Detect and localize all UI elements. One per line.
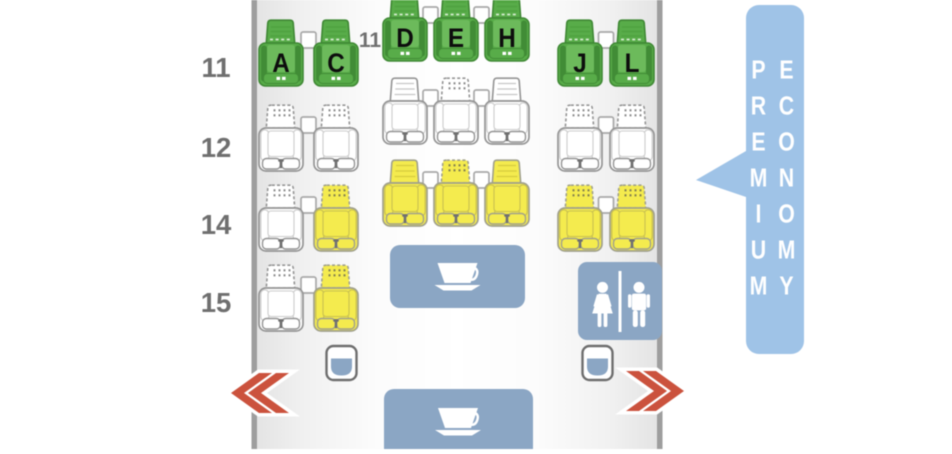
svg-text:E: E bbox=[751, 128, 765, 158]
svg-text:L: L bbox=[625, 49, 640, 78]
svg-text:12: 12 bbox=[201, 132, 232, 163]
svg-text:11: 11 bbox=[359, 29, 382, 52]
svg-text:M: M bbox=[750, 164, 768, 194]
svg-text:N: N bbox=[779, 164, 794, 194]
svg-text:11: 11 bbox=[201, 52, 230, 83]
svg-text:D: D bbox=[396, 24, 414, 53]
svg-text:O: O bbox=[778, 200, 795, 230]
svg-text:P: P bbox=[751, 56, 765, 86]
svg-text:R: R bbox=[751, 92, 766, 122]
svg-text:E: E bbox=[448, 24, 464, 53]
svg-text:M: M bbox=[778, 236, 796, 266]
svg-text:Y: Y bbox=[779, 272, 793, 302]
svg-text:A: A bbox=[272, 49, 290, 78]
svg-text:C: C bbox=[327, 49, 345, 78]
svg-text:H: H bbox=[498, 24, 516, 53]
svg-text:I: I bbox=[756, 200, 762, 230]
svg-text:M: M bbox=[750, 272, 768, 302]
svg-text:14: 14 bbox=[201, 209, 232, 240]
svg-text:J: J bbox=[573, 49, 587, 78]
svg-text:C: C bbox=[779, 92, 794, 122]
svg-text:15: 15 bbox=[201, 287, 232, 318]
svg-text:U: U bbox=[751, 236, 766, 266]
svg-text:E: E bbox=[779, 56, 793, 86]
svg-text:O: O bbox=[778, 128, 795, 158]
